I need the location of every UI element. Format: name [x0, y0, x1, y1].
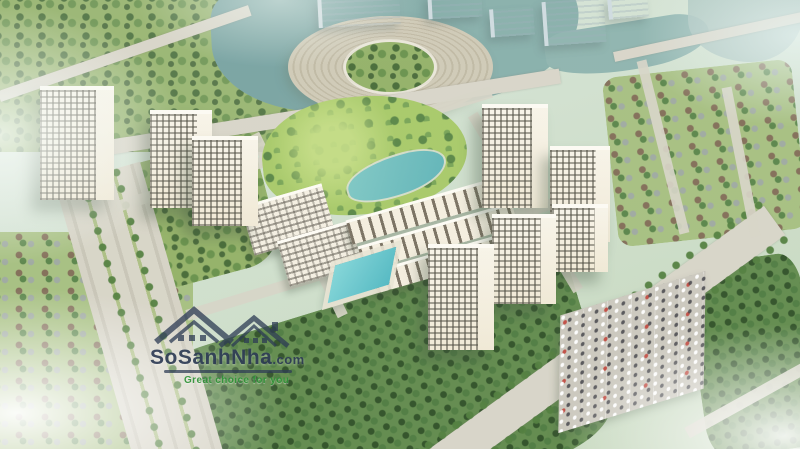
watermark: SoSanhNha.com Great choice for you [150, 302, 320, 386]
brand-text: SoSanhNha.com [150, 347, 320, 368]
campus-building [489, 6, 535, 37]
parking-lot [558, 271, 705, 433]
plaza-tree-island [346, 42, 434, 92]
apartment-tower [552, 204, 608, 272]
brand-underline [164, 370, 292, 373]
apartment-tower [428, 244, 494, 350]
apartment-tower [492, 214, 556, 304]
apartment-tower [40, 86, 114, 200]
aerial-render: SoSanhNha.com Great choice for you [0, 0, 800, 449]
campus-building [317, 0, 400, 28]
apartment-tower [482, 104, 548, 208]
campus-building [607, 0, 649, 20]
campus-building [427, 0, 482, 19]
double-roof-logo-icon [150, 302, 300, 348]
brand-tagline: Great choice for you [184, 375, 320, 386]
brand-name: SoSanhNha [150, 346, 272, 369]
apartment-tower [192, 136, 258, 226]
campus-building [542, 0, 607, 46]
brand-suffix: .com [272, 352, 304, 367]
